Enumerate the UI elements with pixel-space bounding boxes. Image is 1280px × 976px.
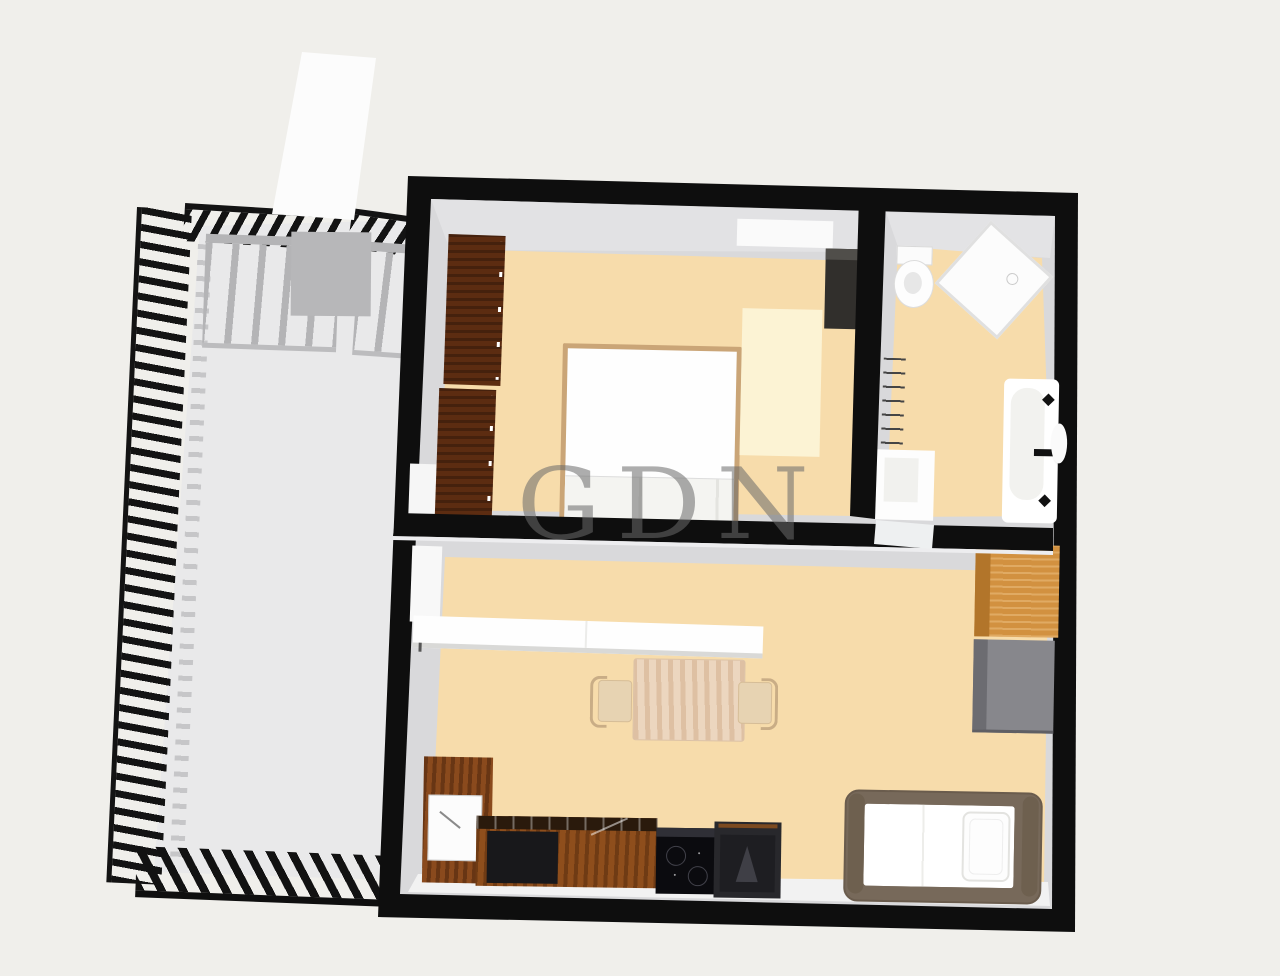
terrace-railing-bottom bbox=[135, 846, 389, 907]
cooktop-speckle bbox=[698, 852, 700, 854]
chair-seat bbox=[738, 682, 773, 724]
terrace-planter-box bbox=[291, 232, 372, 317]
bathtub bbox=[1002, 379, 1060, 524]
cabinet-white-panel bbox=[427, 794, 482, 861]
oven-top-trim bbox=[718, 824, 777, 829]
bedroom-rug bbox=[739, 308, 822, 457]
cooktop-top-strip bbox=[656, 828, 715, 838]
wardrobe-side-face bbox=[974, 544, 991, 636]
cabinet-gray bbox=[972, 639, 1055, 733]
sink-basin bbox=[884, 457, 919, 502]
bathroom-sink bbox=[875, 449, 935, 520]
floor-plan-3d-render: GDN bbox=[0, 0, 1280, 976]
cabinet-side-face bbox=[972, 639, 988, 729]
bathtub-drain-knob bbox=[1038, 494, 1051, 507]
burner-ring bbox=[688, 866, 708, 886]
chair-seat bbox=[598, 680, 633, 722]
burner-ring bbox=[666, 846, 686, 866]
bed-endcap-left bbox=[847, 793, 865, 893]
watermark: GDN bbox=[517, 448, 824, 562]
wardrobe-orange bbox=[974, 544, 1060, 637]
shower-drain bbox=[1004, 271, 1021, 288]
wardrobe-lower bbox=[435, 388, 496, 518]
dining-chair-right bbox=[734, 676, 779, 729]
towel-radiator bbox=[880, 358, 906, 463]
bedroom-window bbox=[737, 219, 834, 249]
dining-table bbox=[632, 658, 745, 742]
cooktop-unit bbox=[656, 828, 716, 895]
kitchen-counter bbox=[476, 816, 658, 889]
oven-appliance bbox=[713, 822, 781, 899]
bed-endcap-right bbox=[1021, 796, 1039, 896]
shelf-seam bbox=[585, 621, 588, 648]
oven-door-highlight bbox=[736, 846, 759, 882]
single-bed bbox=[843, 789, 1043, 904]
cooktop-speckle bbox=[674, 874, 676, 876]
pillow-crease bbox=[969, 818, 1004, 875]
terrace-door-living-room bbox=[410, 545, 443, 622]
single-bed-pillow bbox=[961, 811, 1010, 882]
toilet bbox=[892, 245, 936, 310]
dishwasher-black-panel bbox=[487, 831, 559, 884]
dining-chair-left bbox=[590, 674, 635, 727]
bathtub-basin bbox=[1009, 388, 1045, 501]
shelf-bracket bbox=[418, 643, 421, 652]
wardrobe-upper bbox=[443, 234, 505, 386]
counter-top-strip bbox=[476, 816, 657, 832]
